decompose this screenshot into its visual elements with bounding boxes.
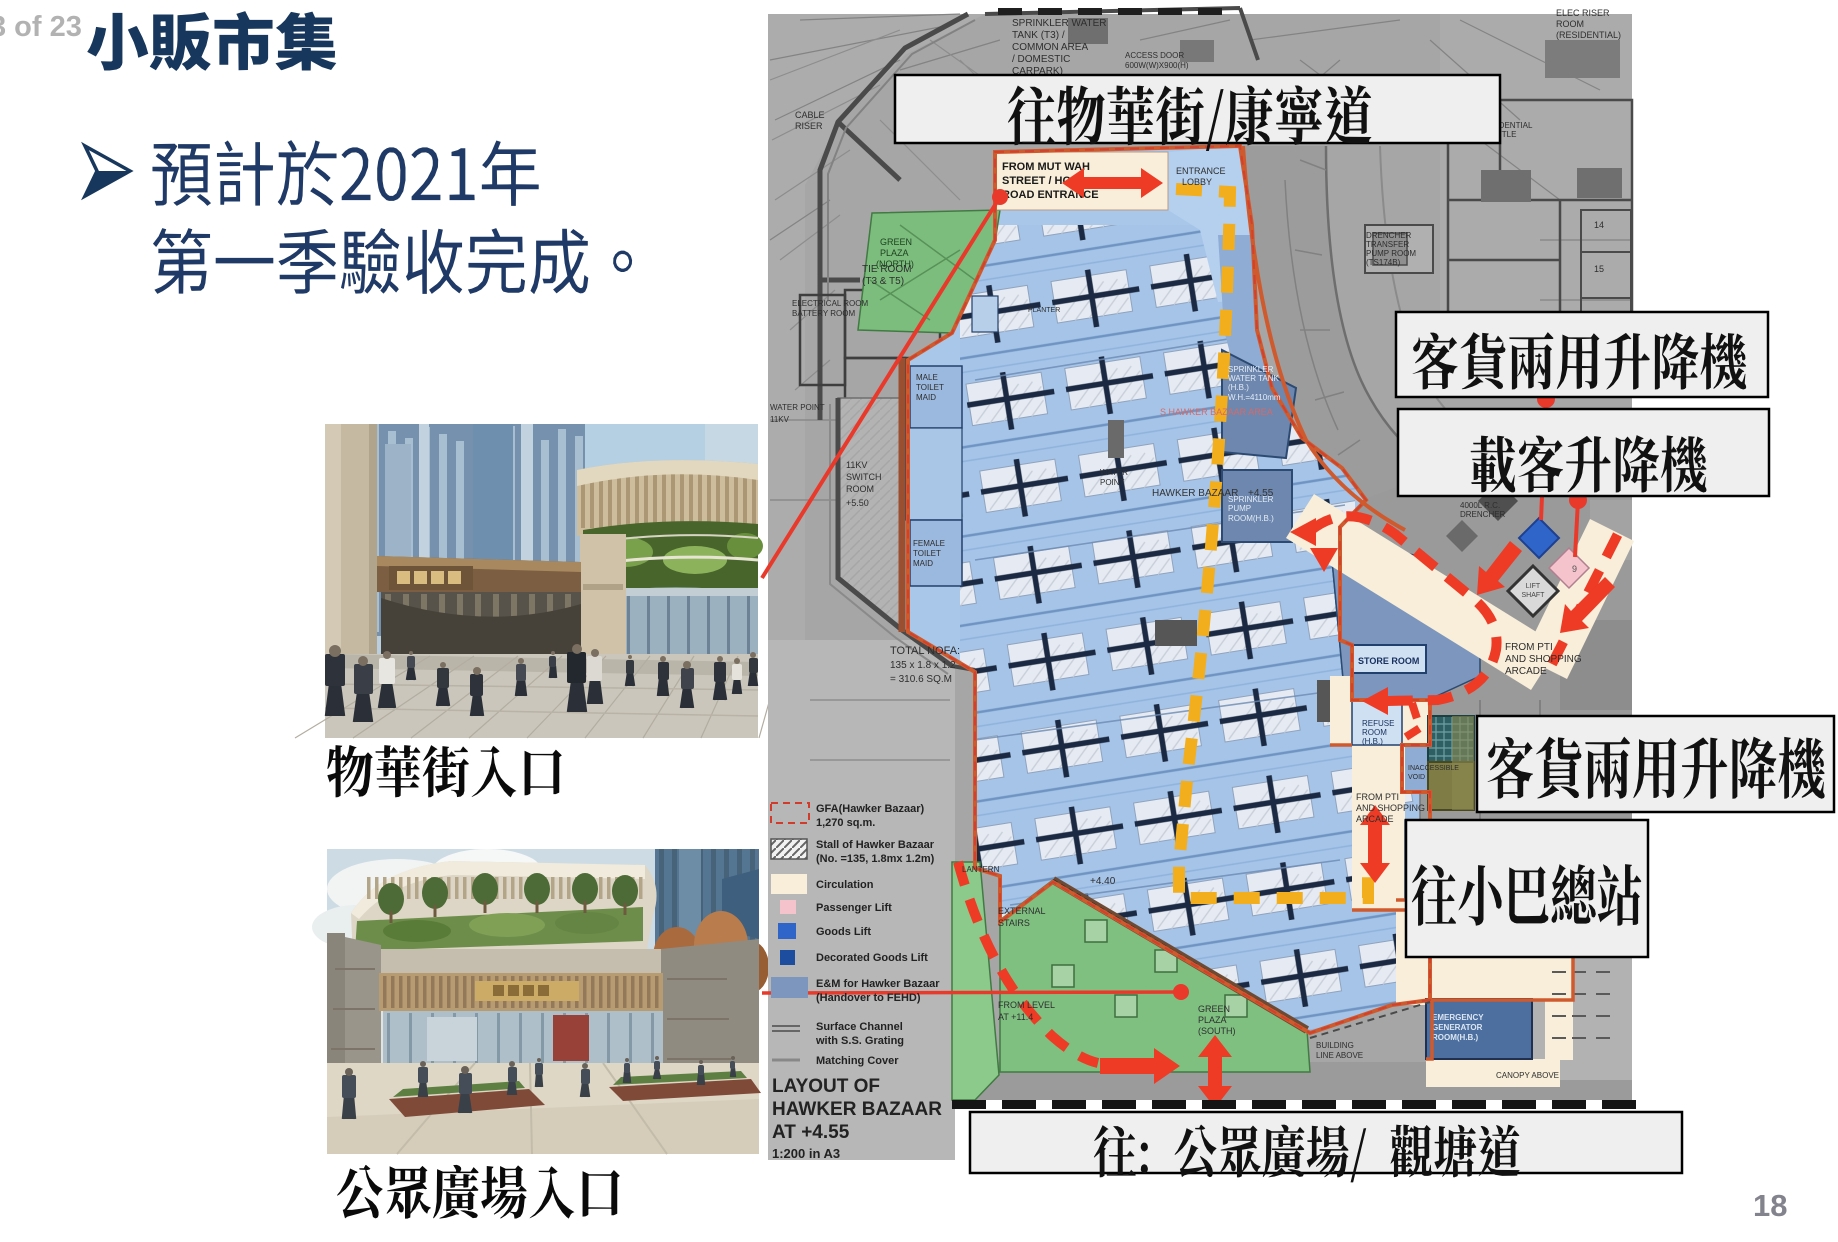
svg-text:STREET / HO: STREET / HO <box>1002 175 1072 187</box>
svg-text:S HAWKER BAZAAR AREA: S HAWKER BAZAAR AREA <box>1160 407 1273 417</box>
svg-text:INACCESSIBLE: INACCESSIBLE <box>1408 765 1459 772</box>
svg-text:ROOM: ROOM <box>1362 728 1387 737</box>
svg-text:1,270 sq.m.: 1,270 sq.m. <box>816 817 875 829</box>
svg-text:with S.S. Grating: with S.S. Grating <box>815 1035 904 1047</box>
svg-text:STORE ROOM: STORE ROOM <box>1358 656 1419 666</box>
svg-text:ARCADE: ARCADE <box>1505 666 1547 677</box>
svg-text:TRANSFER: TRANSFER <box>1366 240 1409 249</box>
svg-text:CABLE: CABLE <box>795 110 825 120</box>
svg-text:TOILET: TOILET <box>913 549 941 558</box>
svg-text:MAID: MAID <box>913 559 933 568</box>
svg-text:TIE ROOM: TIE ROOM <box>862 264 911 275</box>
svg-text:AT +11.4: AT +11.4 <box>998 1012 1033 1022</box>
svg-text:11KV: 11KV <box>846 460 867 470</box>
svg-text:TOILET: TOILET <box>916 383 944 392</box>
svg-text:WATER POINT: WATER POINT <box>770 403 825 412</box>
svg-text:EXTERNAL: EXTERNAL <box>998 906 1046 916</box>
svg-text:DRENCHER: DRENCHER <box>1366 231 1412 240</box>
svg-text:600W(W)X900(H): 600W(W)X900(H) <box>1125 61 1189 70</box>
svg-text:POINT: POINT <box>1100 478 1125 487</box>
svg-text:FROM MUT WAH: FROM MUT WAH <box>1002 161 1090 173</box>
svg-text:PUMP: PUMP <box>1228 504 1251 513</box>
svg-text:BATTERY ROOM: BATTERY ROOM <box>792 309 855 318</box>
svg-text:18: 18 <box>1753 1188 1787 1223</box>
svg-text:COMMON AREA: COMMON AREA <box>1012 42 1088 53</box>
svg-text:ELECTRICAL ROOM: ELECTRICAL ROOM <box>792 299 868 308</box>
svg-text:(T3 & T5): (T3 & T5) <box>862 276 904 287</box>
svg-text:FROM LEVEL: FROM LEVEL <box>998 1000 1055 1010</box>
svg-text:SHAFT: SHAFT <box>1522 592 1546 599</box>
svg-text:TOTAL NOFA:: TOTAL NOFA: <box>890 645 960 657</box>
svg-text:HAWKER BAZAAR: HAWKER BAZAAR <box>772 1099 942 1120</box>
svg-text:= 310.6 SQ.M: = 310.6 SQ.M <box>890 674 952 685</box>
svg-text:E&M for Hawker Bazaar: E&M for Hawker Bazaar <box>816 978 940 990</box>
svg-text:(H.B.): (H.B.) <box>1362 737 1383 746</box>
svg-text:Passenger Lift: Passenger Lift <box>816 902 892 914</box>
svg-text:ROOM: ROOM <box>846 484 874 494</box>
svg-text:FROM PTI: FROM PTI <box>1356 792 1399 802</box>
svg-text:ROOM: ROOM <box>1556 19 1584 29</box>
svg-text:9: 9 <box>1572 564 1577 574</box>
svg-text:PLANTER: PLANTER <box>1028 307 1060 314</box>
svg-text:WATER TANK: WATER TANK <box>1228 374 1279 383</box>
svg-text:AND SHOPPING: AND SHOPPING <box>1505 654 1582 665</box>
svg-text:/ DOMESTIC: / DOMESTIC <box>1012 54 1070 65</box>
svg-text:(H.B.): (H.B.) <box>1228 383 1249 392</box>
svg-text:VOID: VOID <box>1408 774 1425 781</box>
svg-text:LINE ABOVE: LINE ABOVE <box>1316 1051 1363 1060</box>
svg-text:ROOM(H.B.): ROOM(H.B.) <box>1432 1033 1479 1042</box>
svg-text:1:200 in A3: 1:200 in A3 <box>772 1146 840 1161</box>
svg-text:LANTERN: LANTERN <box>962 865 1000 874</box>
svg-text:Stall of Hawker Bazaar: Stall of Hawker Bazaar <box>816 839 935 851</box>
svg-text:MAID: MAID <box>916 393 936 402</box>
svg-text:14: 14 <box>1594 220 1604 230</box>
svg-text:ARCADE: ARCADE <box>1356 814 1394 824</box>
svg-text:+5.50: +5.50 <box>846 498 869 508</box>
svg-text:(TS174B): (TS174B) <box>1366 258 1401 267</box>
svg-text:(SOUTH): (SOUTH) <box>1198 1026 1236 1036</box>
svg-text:PUMP ROOM: PUMP ROOM <box>1366 249 1416 258</box>
svg-text:SPRINKLER WATER: SPRINKLER WATER <box>1012 18 1106 29</box>
svg-text:GENERATOR: GENERATOR <box>1432 1023 1483 1032</box>
svg-text:(Handover to FEHD): (Handover to FEHD) <box>816 992 921 1004</box>
svg-text:CANOPY ABOVE: CANOPY ABOVE <box>1496 1071 1559 1080</box>
svg-text:BUILDING: BUILDING <box>1316 1041 1354 1050</box>
svg-text:TANK (T3) /: TANK (T3) / <box>1012 30 1065 41</box>
svg-text:15: 15 <box>1594 264 1604 274</box>
svg-text:GREEN: GREEN <box>880 237 912 247</box>
svg-text:Surface Channel: Surface Channel <box>816 1021 903 1033</box>
svg-text:LIFT: LIFT <box>1526 583 1541 590</box>
svg-text:+4.40: +4.40 <box>1090 876 1116 887</box>
svg-text:AT +4.55: AT +4.55 <box>772 1122 850 1143</box>
svg-text:AND SHOPPING: AND SHOPPING <box>1356 803 1425 813</box>
svg-text:3 of 23: 3 of 23 <box>0 11 82 43</box>
svg-text:DRENCHER: DRENCHER <box>1460 510 1506 519</box>
svg-text:SWITCH: SWITCH <box>846 472 882 482</box>
svg-text:Goods Lift: Goods Lift <box>816 926 871 938</box>
svg-text:GREEN: GREEN <box>1198 1004 1230 1014</box>
svg-text:ELEC RISER: ELEC RISER <box>1556 8 1610 18</box>
svg-text:REFUSE: REFUSE <box>1362 719 1394 728</box>
svg-text:WATER: WATER <box>1100 468 1128 477</box>
svg-text:135 x 1.8 x 1.2: 135 x 1.8 x 1.2 <box>890 660 956 671</box>
svg-text:4000L R.C.: 4000L R.C. <box>1460 501 1500 510</box>
svg-text:GFA(Hawker Bazaar): GFA(Hawker Bazaar) <box>816 803 925 815</box>
svg-text:ENTRANCE: ENTRANCE <box>1176 166 1226 176</box>
svg-text:Decorated Goods Lift: Decorated Goods Lift <box>816 952 928 964</box>
svg-text:PLAZA: PLAZA <box>880 248 909 258</box>
svg-text:STAIRS: STAIRS <box>998 918 1030 928</box>
svg-text:ACCESS DOOR: ACCESS DOOR <box>1125 51 1184 60</box>
svg-text:LOBBY: LOBBY <box>1182 177 1212 187</box>
svg-text:ROAD ENTRANCE: ROAD ENTRANCE <box>1002 189 1099 201</box>
svg-text:FEMALE: FEMALE <box>913 539 945 548</box>
svg-text:Matching Cover: Matching Cover <box>816 1055 899 1067</box>
svg-text:MALE: MALE <box>916 373 938 382</box>
svg-text:W.H.=4110mm: W.H.=4110mm <box>1228 393 1281 402</box>
svg-text:PLAZA: PLAZA <box>1198 1015 1227 1025</box>
svg-text:ROOM(H.B.): ROOM(H.B.) <box>1228 514 1274 523</box>
svg-text:HAWKER BAZAAR: HAWKER BAZAAR <box>1152 488 1238 499</box>
svg-text:LAYOUT OF: LAYOUT OF <box>772 1076 880 1097</box>
svg-text:EMERGENCY: EMERGENCY <box>1432 1013 1484 1022</box>
svg-text:Circulation: Circulation <box>816 879 874 891</box>
svg-text:SPRINKLER: SPRINKLER <box>1228 365 1274 374</box>
svg-text:FROM PTI: FROM PTI <box>1505 642 1553 653</box>
svg-text:(No. =135, 1.8mx 1.2m): (No. =135, 1.8mx 1.2m) <box>816 853 935 865</box>
svg-text:RISER: RISER <box>795 121 823 131</box>
svg-text:SPRINKLER: SPRINKLER <box>1228 495 1274 504</box>
svg-text:11KV: 11KV <box>770 415 790 424</box>
svg-text:(RESIDENTIAL): (RESIDENTIAL) <box>1556 30 1621 40</box>
